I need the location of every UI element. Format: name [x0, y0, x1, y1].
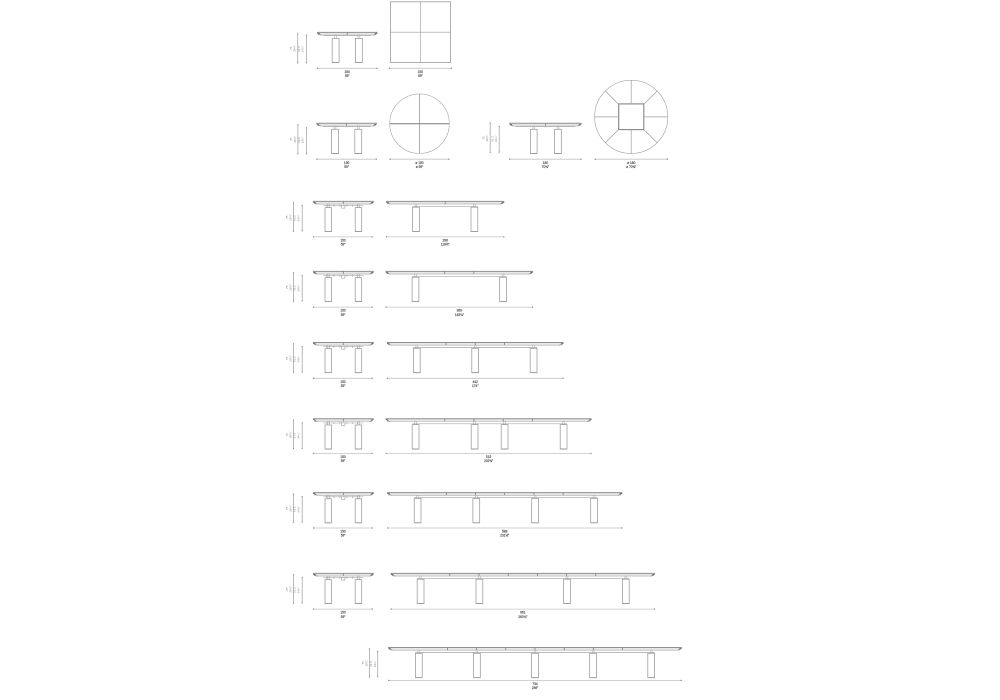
svg-text:260¼”: 260¼”: [518, 615, 527, 619]
svg-text:231½”: 231½”: [500, 534, 509, 538]
svg-text:24¼”: 24¼”: [296, 285, 300, 292]
svg-text:59”: 59”: [345, 74, 350, 78]
svg-text:59”: 59”: [341, 615, 346, 619]
svg-text:24¼”: 24¼”: [373, 660, 377, 667]
svg-text:29½”: 29½”: [485, 135, 489, 142]
svg-text:24¼”: 24¼”: [300, 46, 304, 53]
svg-text:29½”: 29½”: [364, 660, 368, 667]
svg-text:59”: 59”: [341, 313, 346, 317]
svg-text:59”: 59”: [418, 74, 423, 78]
svg-text:59”: 59”: [341, 459, 346, 463]
svg-text:24¼”: 24¼”: [296, 506, 300, 513]
svg-text:59”: 59”: [341, 534, 346, 538]
svg-text:24¼”: 24¼”: [296, 215, 300, 222]
svg-text:24¼”: 24¼”: [296, 587, 300, 594]
svg-text:145¼”: 145¼”: [455, 313, 464, 317]
svg-text:289”: 289”: [532, 686, 538, 690]
svg-text:59”: 59”: [341, 384, 346, 388]
svg-text:24¼”: 24¼”: [301, 137, 305, 144]
svg-text:ø 59”: ø 59”: [416, 165, 423, 169]
svg-text:ø 70⅜”: ø 70⅜”: [626, 165, 636, 169]
svg-text:116½”: 116½”: [441, 243, 450, 247]
svg-text:24¼”: 24¼”: [296, 432, 300, 439]
svg-text:59”: 59”: [341, 243, 346, 247]
svg-text:24¼”: 24¼”: [296, 356, 300, 363]
svg-text:174”: 174”: [472, 384, 478, 388]
svg-text:59”: 59”: [344, 165, 349, 169]
svg-text:24¼”: 24¼”: [494, 135, 498, 142]
svg-text:202¾”: 202¾”: [484, 459, 493, 463]
svg-text:70⅜”: 70⅜”: [542, 165, 549, 169]
